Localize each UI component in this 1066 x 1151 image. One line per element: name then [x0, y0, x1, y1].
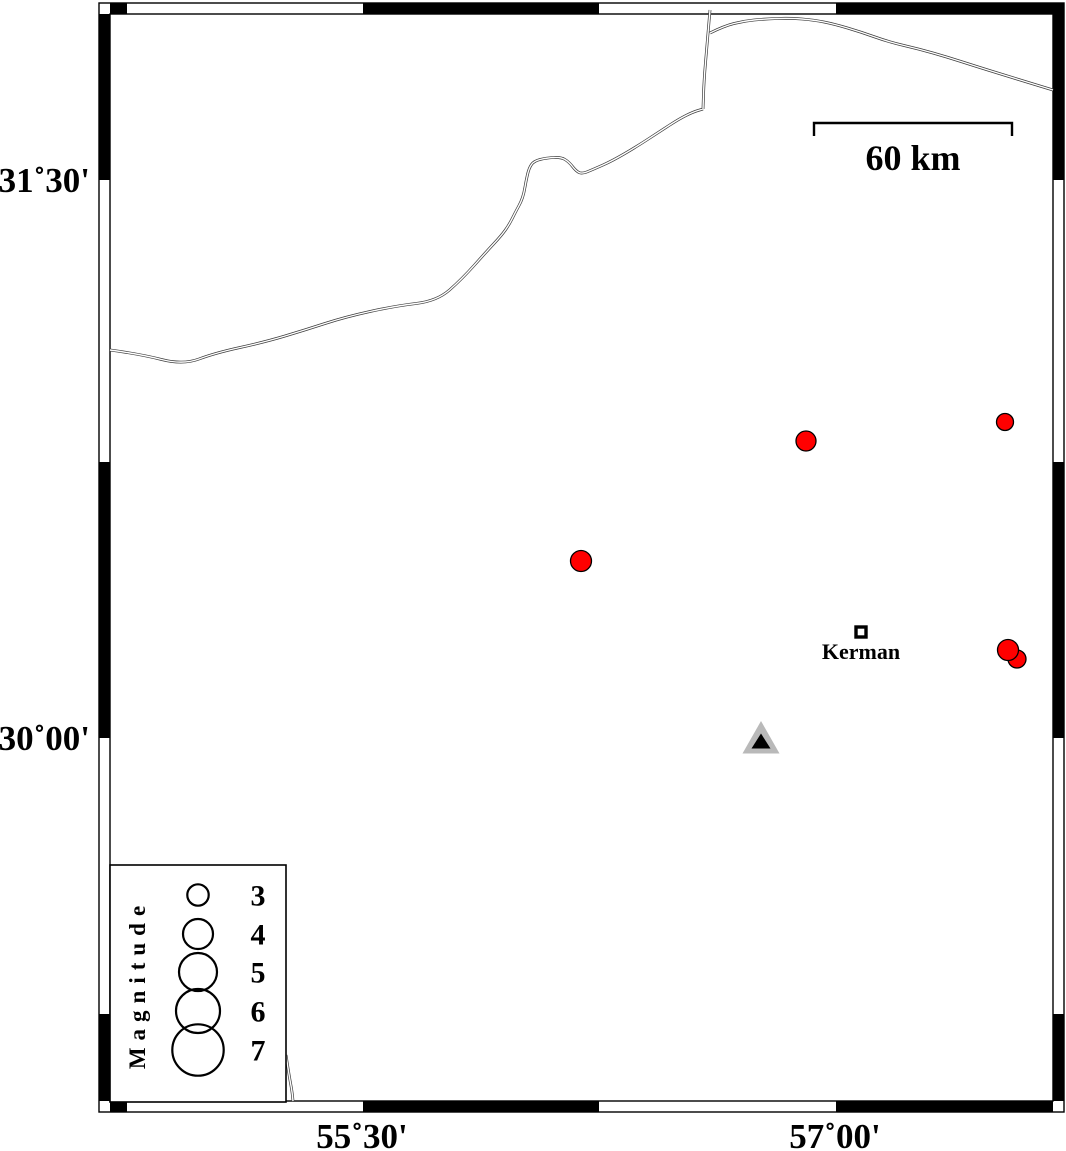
- scale-bar: [814, 123, 1012, 136]
- legend-magnitude-value: 5: [251, 957, 266, 990]
- legend-magnitude-value: 6: [251, 996, 266, 1029]
- lat-label-30-00: 30˚00': [0, 719, 90, 758]
- epicenter-circle: [796, 431, 816, 451]
- legend-title: Magnitude: [125, 899, 150, 1069]
- road-center: [710, 18, 1053, 90]
- epicenter-circle: [998, 640, 1019, 661]
- map-svg: 34567 31˚30' 30˚00' 55˚30' 57˚00' 60 km …: [0, 0, 1066, 1151]
- epicenter-circles: [571, 414, 1027, 669]
- lat-label-31-30: 31˚30': [0, 161, 90, 200]
- legend-magnitude-value: 7: [251, 1035, 266, 1068]
- road-casing: [710, 18, 1053, 90]
- frame-segment: [99, 1014, 110, 1101]
- lon-label-57-00: 57˚00': [789, 1117, 880, 1151]
- epicenter-circle: [997, 414, 1014, 431]
- legend-magnitude-value: 3: [251, 880, 266, 913]
- lon-label-55-30: 55˚30': [316, 1117, 407, 1151]
- road-center: [110, 109, 703, 362]
- city-marker: [856, 627, 866, 637]
- frame-segment: [836, 3, 1064, 14]
- city-name-label: Kerman: [822, 639, 900, 664]
- frame-segment: [363, 1101, 599, 1112]
- map-labels: 31˚30' 30˚00' 55˚30' 57˚00' 60 km Kerman…: [0, 138, 961, 1151]
- road-center: [286, 1055, 293, 1101]
- frame-segment: [99, 462, 110, 738]
- frame-segment: [836, 1101, 1053, 1112]
- station-triangle: [743, 721, 780, 754]
- scale-bar-label: 60 km: [865, 138, 960, 178]
- frame-segment: [110, 3, 127, 14]
- frame-segment: [1053, 14, 1064, 180]
- seismicity-map: 34567 31˚30' 30˚00' 55˚30' 57˚00' 60 km …: [0, 0, 1066, 1151]
- frame-segment: [99, 14, 110, 180]
- scale-bar-bracket: [814, 123, 1012, 136]
- legend-magnitude-value: 4: [251, 919, 266, 952]
- road-casing: [110, 109, 703, 362]
- city-square: [856, 627, 866, 637]
- epicenter-circle: [571, 551, 592, 572]
- frame-segment: [1053, 462, 1064, 738]
- frame-segment: [363, 3, 599, 14]
- frame-segment: [1053, 1014, 1064, 1101]
